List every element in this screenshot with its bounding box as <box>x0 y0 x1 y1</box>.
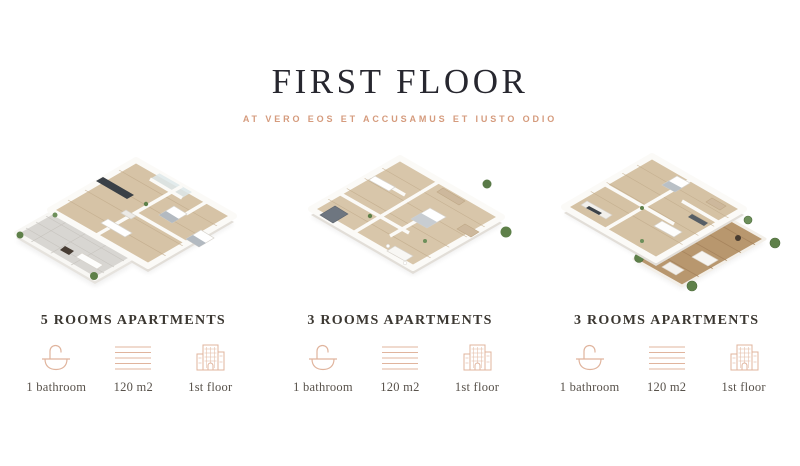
feature-list: 1 bathroom 120 m2 <box>25 342 241 395</box>
apartment-title: 3 ROOMS APARTMENTS <box>307 313 492 329</box>
section-header: FIRST FLOOR AT VERO EOS ET ACCUSAMUS ET … <box>0 0 800 124</box>
feature-label: 1st floor <box>188 380 232 395</box>
floor-plan-3d-3 <box>542 146 792 296</box>
floor-plan-illustration-2 <box>275 146 525 296</box>
feature-list: 1 bathroom 120 m2 <box>559 342 775 395</box>
bathtub-icon <box>38 342 74 372</box>
feature-label: 1st floor <box>722 380 766 395</box>
bathtub-icon <box>305 342 341 372</box>
floor-plan-illustration-1 <box>8 146 258 296</box>
feature-label: 1 bathroom <box>26 380 86 395</box>
feature-label: 120 m2 <box>647 380 686 395</box>
feature-floor: 1st floor <box>446 342 508 395</box>
floor-plan-3d-2 <box>275 146 525 296</box>
feature-label: 1 bathroom <box>560 380 620 395</box>
feature-area: 120 m2 <box>636 342 698 395</box>
area-icon <box>113 342 153 372</box>
feature-label: 120 m2 <box>380 380 419 395</box>
feature-label: 1st floor <box>455 380 499 395</box>
page-title: FIRST FLOOR <box>0 64 800 99</box>
area-icon <box>647 342 687 372</box>
building-icon <box>459 342 495 372</box>
page-subtitle: AT VERO EOS ET ACCUSAMUS ET IUSTO ODIO <box>0 114 800 124</box>
floor-plan-illustration-3 <box>542 146 792 296</box>
feature-area: 120 m2 <box>102 342 164 395</box>
building-icon <box>192 342 228 372</box>
apartments-row: 5 ROOMS APARTMENTS 1 bathroom <box>0 146 800 395</box>
first-floor-section: FIRST FLOOR AT VERO EOS ET ACCUSAMUS ET … <box>0 0 800 466</box>
apartment-card-2: 3 ROOMS APARTMENTS 1 bathroom <box>267 146 534 395</box>
apartment-card-1: 5 ROOMS APARTMENTS 1 bathroom <box>0 146 267 395</box>
feature-floor: 1st floor <box>713 342 775 395</box>
feature-floor: 1st floor <box>179 342 241 395</box>
feature-area: 120 m2 <box>369 342 431 395</box>
feature-list: 1 bathroom 120 m2 <box>292 342 508 395</box>
building-icon <box>726 342 762 372</box>
bathtub-icon <box>572 342 608 372</box>
apartment-title: 5 ROOMS APARTMENTS <box>41 313 226 329</box>
area-icon <box>380 342 420 372</box>
floor-plan-3d-1 <box>8 146 258 296</box>
feature-label: 1 bathroom <box>293 380 353 395</box>
apartment-card-3: 3 ROOMS APARTMENTS 1 bathroom <box>533 146 800 395</box>
feature-bathroom: 1 bathroom <box>292 342 354 395</box>
feature-label: 120 m2 <box>114 380 153 395</box>
feature-bathroom: 1 bathroom <box>559 342 621 395</box>
apartment-title: 3 ROOMS APARTMENTS <box>574 313 759 329</box>
feature-bathroom: 1 bathroom <box>25 342 87 395</box>
